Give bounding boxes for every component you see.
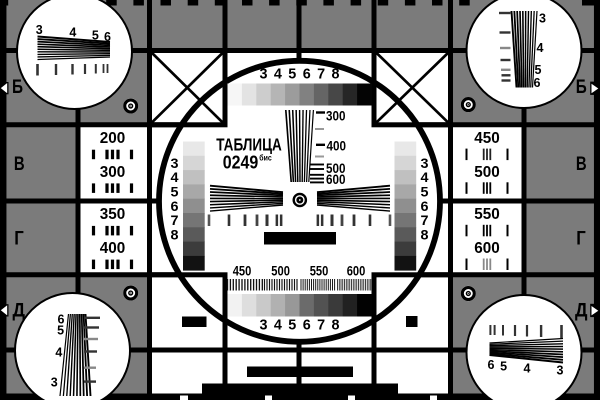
svg-text:бис: бис — [259, 154, 272, 163]
svg-text:8: 8 — [332, 318, 340, 334]
svg-text:6: 6 — [104, 30, 111, 44]
svg-text:5: 5 — [535, 63, 542, 77]
svg-text:4: 4 — [55, 346, 62, 360]
svg-text:Г: Г — [576, 228, 586, 250]
svg-text:5: 5 — [57, 324, 64, 338]
svg-text:7: 7 — [317, 67, 325, 83]
svg-text:8: 8 — [332, 67, 340, 83]
svg-text:Д: Д — [12, 300, 25, 322]
svg-text:4: 4 — [69, 26, 76, 40]
svg-text:500: 500 — [271, 263, 290, 279]
svg-text:550: 550 — [310, 263, 329, 279]
svg-text:6: 6 — [534, 76, 541, 90]
svg-text:3: 3 — [539, 12, 546, 26]
svg-text:550: 550 — [474, 206, 500, 223]
svg-text:400: 400 — [100, 240, 126, 257]
svg-text:4: 4 — [524, 362, 531, 376]
svg-text:450: 450 — [233, 263, 252, 279]
svg-text:Г: Г — [14, 228, 24, 250]
svg-text:7: 7 — [317, 318, 325, 334]
svg-text:5: 5 — [500, 360, 507, 374]
svg-text:4: 4 — [274, 67, 283, 83]
svg-text:3: 3 — [260, 318, 268, 334]
svg-text:Б: Б — [12, 76, 23, 98]
svg-text:6: 6 — [488, 358, 495, 372]
svg-text:3: 3 — [36, 23, 43, 37]
svg-text:6: 6 — [303, 67, 311, 83]
svg-text:5: 5 — [92, 29, 99, 43]
svg-text:200: 200 — [100, 130, 126, 147]
svg-text:600: 600 — [474, 240, 500, 257]
svg-text:400: 400 — [327, 137, 347, 153]
svg-text:600: 600 — [347, 263, 366, 279]
svg-text:5: 5 — [288, 318, 296, 334]
svg-text:350: 350 — [100, 206, 126, 223]
svg-text:3: 3 — [51, 376, 58, 390]
svg-text:8: 8 — [421, 226, 429, 242]
svg-text:Д: Д — [575, 300, 588, 322]
svg-text:500: 500 — [474, 164, 500, 181]
svg-text:4: 4 — [537, 41, 544, 55]
svg-text:В: В — [576, 153, 587, 175]
svg-text:3: 3 — [557, 364, 564, 378]
svg-text:450: 450 — [474, 130, 500, 147]
svg-text:6: 6 — [303, 318, 311, 334]
svg-text:5: 5 — [288, 67, 296, 83]
svg-text:8: 8 — [171, 226, 179, 242]
svg-text:300: 300 — [100, 164, 126, 181]
svg-text:4: 4 — [274, 318, 283, 334]
svg-text:3: 3 — [260, 67, 268, 83]
svg-text:В: В — [14, 153, 25, 175]
svg-text:Б: Б — [576, 76, 587, 98]
svg-text:300: 300 — [326, 107, 346, 123]
svg-text:0249: 0249 — [223, 151, 259, 172]
svg-text:600: 600 — [326, 171, 346, 187]
